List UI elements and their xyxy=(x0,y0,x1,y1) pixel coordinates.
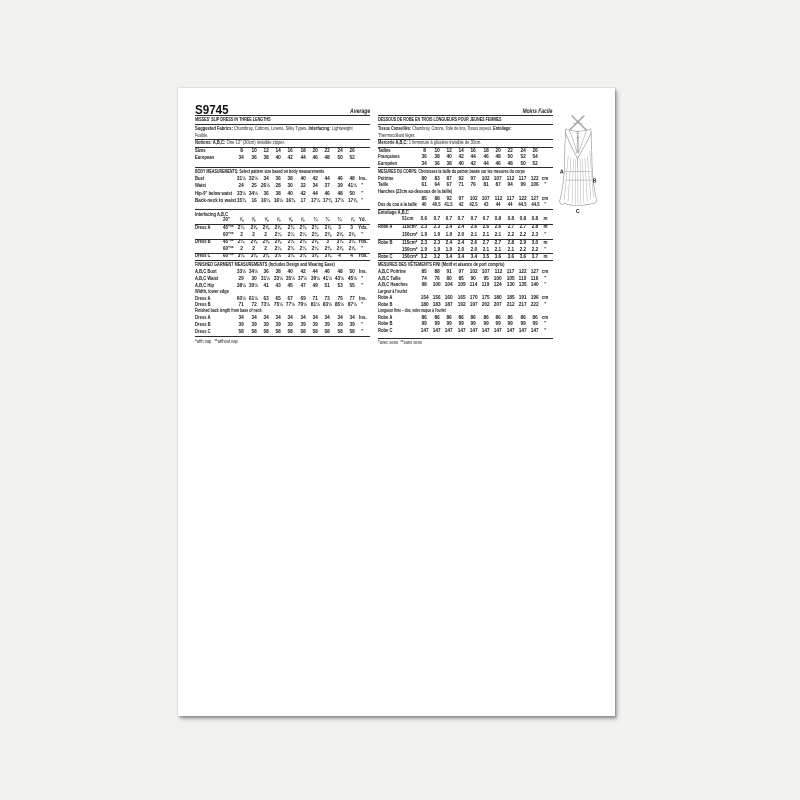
svg-text:C: C xyxy=(576,209,580,215)
svg-text:A: A xyxy=(560,169,564,175)
svg-text:B: B xyxy=(593,178,597,184)
